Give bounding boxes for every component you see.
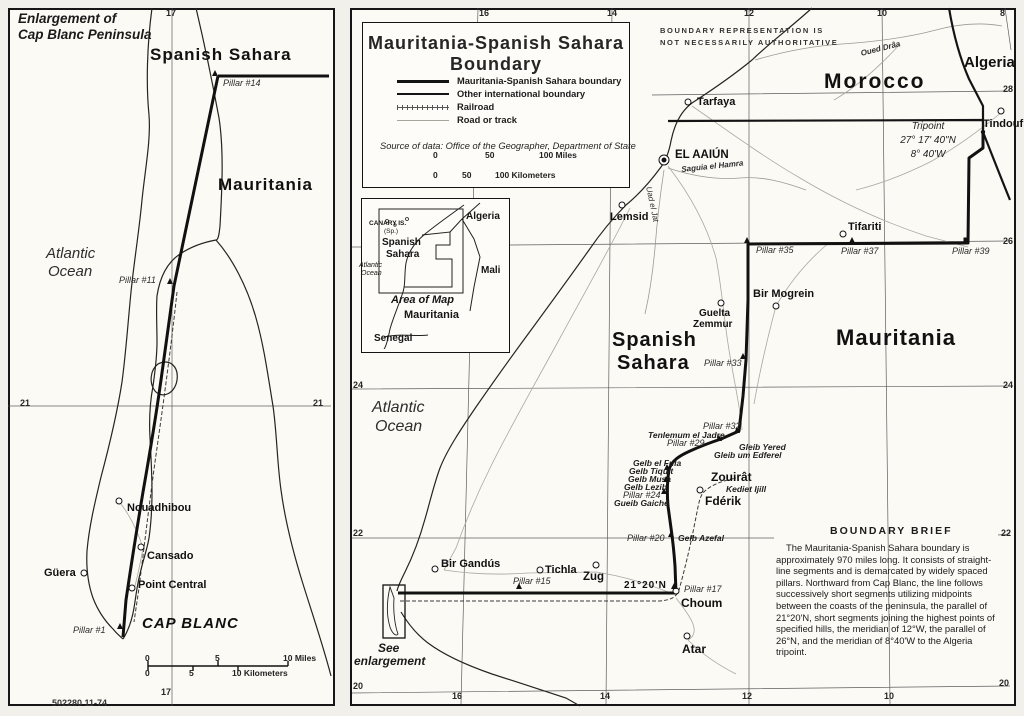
pillar-label: Pillar #11: [119, 276, 156, 285]
inset-label: Ocean: [361, 270, 382, 277]
town-label: Cansado: [147, 551, 193, 562]
pillar-marker: [668, 531, 674, 537]
scale-label: 10 Kilometers: [232, 669, 288, 678]
inset-label: (Sp.): [384, 229, 398, 236]
legend-item: Other international boundary: [397, 88, 617, 100]
grid-number: 10: [884, 692, 894, 701]
town-label: Güera: [44, 568, 76, 579]
town-marker: [718, 300, 725, 307]
disclaimer-line1: BOUNDARY REPRESENTATION IS: [660, 26, 824, 35]
water-label: Atlantic: [372, 400, 424, 416]
region-label: Mauritania: [836, 327, 956, 349]
town-label: Bir Gandús: [441, 559, 500, 570]
inset-label: Spanish: [382, 238, 421, 248]
town-marker: [773, 303, 780, 310]
grid-number: 12: [744, 9, 754, 18]
legend-item: Railroad: [397, 101, 617, 113]
grid-number: 22: [353, 529, 363, 538]
town-label: 21°20'N: [624, 581, 667, 591]
town-marker: [537, 567, 544, 574]
pillar-label: Pillar #14: [223, 79, 261, 88]
pillar-marker: [671, 583, 677, 589]
pillar-marker: [117, 623, 123, 629]
map-title-line2: Boundary: [363, 54, 629, 75]
legend-symbol-sw-b1: [397, 80, 449, 83]
scale-label: 10 Miles: [283, 654, 316, 663]
see-enlargement-line1: See: [378, 641, 399, 655]
source-note: Source of data: Office of the Geographer…: [380, 141, 636, 151]
town-marker: [116, 498, 123, 505]
town-marker: [840, 231, 847, 238]
region-label: Spanish Sahara: [150, 46, 292, 63]
grid-number: 26: [1003, 237, 1013, 246]
grid-number: 10: [877, 9, 887, 18]
tripoint-coordinates-lon: 8° 40'W: [876, 149, 980, 160]
grid-number: 22: [1001, 529, 1011, 538]
town-marker: [129, 585, 136, 592]
town-label: Zemmur: [693, 320, 732, 330]
pillar-label: Pillar #37: [841, 247, 879, 256]
town-label: Bir Mogrein: [753, 289, 814, 300]
disclaimer-line2: NOT NECESSARILY AUTHORITATIVE: [660, 38, 838, 47]
scale-label: 50: [462, 171, 471, 180]
town-label: Fdérik: [705, 495, 741, 507]
grid-number: 14: [607, 9, 617, 18]
map-title-line1: Mauritania-Spanish Sahara: [363, 33, 629, 54]
scale-label: 0: [433, 151, 438, 160]
grid-number: 17: [166, 9, 176, 18]
inset-label: Mauritania: [404, 310, 459, 321]
water-label: Atlantic: [46, 246, 95, 261]
town-marker: [138, 544, 145, 551]
legend-item-label: Road or track: [457, 115, 517, 125]
scale-label: 5: [215, 654, 220, 663]
inset-label: Sahara: [386, 250, 419, 260]
inset-label: CANARY IS.: [369, 221, 406, 228]
town-marker: [659, 155, 670, 166]
town-marker: [998, 108, 1005, 115]
grid-number: 20: [353, 682, 363, 691]
pillar-label: Pillar #17: [684, 585, 722, 594]
town-label: Atar: [682, 643, 706, 655]
pillar-label: Pillar #39: [952, 247, 990, 256]
pillar-label: Pillar #33: [704, 359, 742, 368]
inset-label: Area of Map: [391, 295, 454, 306]
town-label: Zouirât: [711, 471, 752, 483]
pillar-marker: [849, 237, 855, 243]
grid-number: 14: [600, 692, 610, 701]
scale-label: 100 Miles: [539, 151, 577, 160]
region-label: CAP BLANC: [142, 616, 239, 631]
inset-label: Atlantic: [359, 262, 382, 269]
pillar-marker: [964, 238, 969, 243]
hill-label: Gelb Azefal: [678, 534, 724, 543]
grid-number: 28: [1003, 85, 1013, 94]
town-marker: [81, 570, 88, 577]
hill-label: Tenlemum el Jadre: [648, 431, 725, 440]
legend-item-label: Railroad: [457, 102, 494, 112]
enlargement-title-line1: Enlargement of: [18, 12, 116, 26]
grid-number: 16: [479, 9, 489, 18]
hill-label: Gelb Lezib: [624, 483, 667, 492]
grid-number: 12: [742, 692, 752, 701]
town-label: Lemsid: [610, 212, 649, 223]
scale-label: 100 Kilometers: [495, 171, 555, 180]
region-label: Sahara: [617, 353, 690, 373]
legend-symbol-sw-road: [397, 120, 449, 121]
tripoint-coordinates-lat: 27° 17' 40"N: [876, 135, 980, 146]
region-label: Mauritania: [218, 176, 313, 193]
scale-label: 5: [189, 669, 194, 678]
see-enlargement-line2: enlargement: [354, 654, 425, 668]
grid-number: 24: [1003, 381, 1013, 390]
region-label: Morocco: [824, 71, 926, 92]
pillar-label: Pillar #29: [667, 439, 705, 448]
town-marker: [432, 566, 439, 573]
pillar-label: Pillar #35: [756, 246, 794, 255]
town-label: Guelta: [699, 309, 730, 319]
region-label: Spanish: [612, 330, 697, 350]
water-label: Ocean: [48, 264, 92, 279]
map-title-box: Mauritania-Spanish Sahara Boundary Mauri…: [362, 22, 630, 188]
town-marker: [619, 202, 626, 209]
inset-label: Senegal: [374, 334, 412, 344]
town-label: Nouadhibou: [127, 503, 191, 514]
legend-item: Mauritania-Spanish Sahara boundary: [397, 75, 617, 87]
grid-number: 24: [353, 381, 363, 390]
scale-label: 0: [433, 171, 438, 180]
town-marker: [684, 633, 691, 640]
grid-number: 16: [452, 692, 462, 701]
scale-label: 0: [145, 654, 150, 663]
legend-item-label: Other international boundary: [457, 89, 585, 99]
water-label: Ocean: [375, 419, 422, 435]
scale-label: 50: [485, 151, 494, 160]
inset-label: Mali: [481, 266, 500, 276]
town-label: Point Central: [138, 580, 206, 591]
enlargement-title-line2: Cap Blanc Peninsula: [18, 28, 152, 42]
pillar-marker: [744, 237, 750, 243]
town-label: Tindouf: [983, 119, 1023, 130]
grid-number: 21: [20, 399, 30, 408]
pillar-marker: [167, 278, 173, 284]
town-label: EL AAIÚN: [675, 150, 729, 162]
legend-item: Road or track: [397, 114, 617, 126]
town-label: Tarfaya: [697, 97, 735, 108]
region-label: Algeria: [964, 55, 1015, 70]
town-label: Tifariti: [848, 222, 881, 233]
pillar-marker: [212, 70, 218, 76]
legend-item-label: Mauritania-Spanish Sahara boundary: [457, 76, 621, 86]
town-marker: [685, 99, 692, 106]
sheet-number: 502280 11-74: [52, 698, 107, 708]
pillar-marker: [740, 353, 746, 359]
town-label: Zug: [583, 572, 604, 584]
legend: Mauritania-Spanish Sahara boundaryOther …: [397, 75, 617, 127]
pillar-marker: [516, 583, 522, 589]
inset-label: Algeria: [466, 212, 500, 222]
grid-number: 17: [161, 688, 171, 697]
tripoint-label: Tripoint: [876, 121, 980, 132]
pillar-marker: [734, 427, 740, 433]
boundary-brief-heading: BOUNDARY BRIEF: [830, 525, 953, 537]
hill-label: Gleib um Edferel: [714, 451, 782, 460]
boundary-brief-text: The Mauritania-Spanish Sahara boundary i…: [776, 542, 1002, 658]
grid-number: 21: [313, 399, 323, 408]
hill-label: Kediet Ijill: [726, 485, 766, 494]
grid-number: 8: [1000, 9, 1005, 18]
legend-symbol-sw-rail: [397, 105, 449, 110]
map-sheet: Mauritania-Spanish Sahara Boundary Mauri…: [0, 0, 1024, 716]
town-marker: [697, 487, 704, 494]
hill-label: Gueib Gaiche: [614, 499, 669, 508]
town-label: Choum: [681, 597, 722, 609]
town-label: Tichla: [545, 565, 577, 576]
scale-label: 0: [145, 669, 150, 678]
legend-symbol-sw-b2: [397, 93, 449, 95]
town-marker: [593, 562, 600, 569]
pillar-label: Pillar #1: [73, 626, 106, 635]
grid-number: 20: [999, 679, 1009, 688]
pillar-label: Pillar #20: [627, 534, 665, 543]
